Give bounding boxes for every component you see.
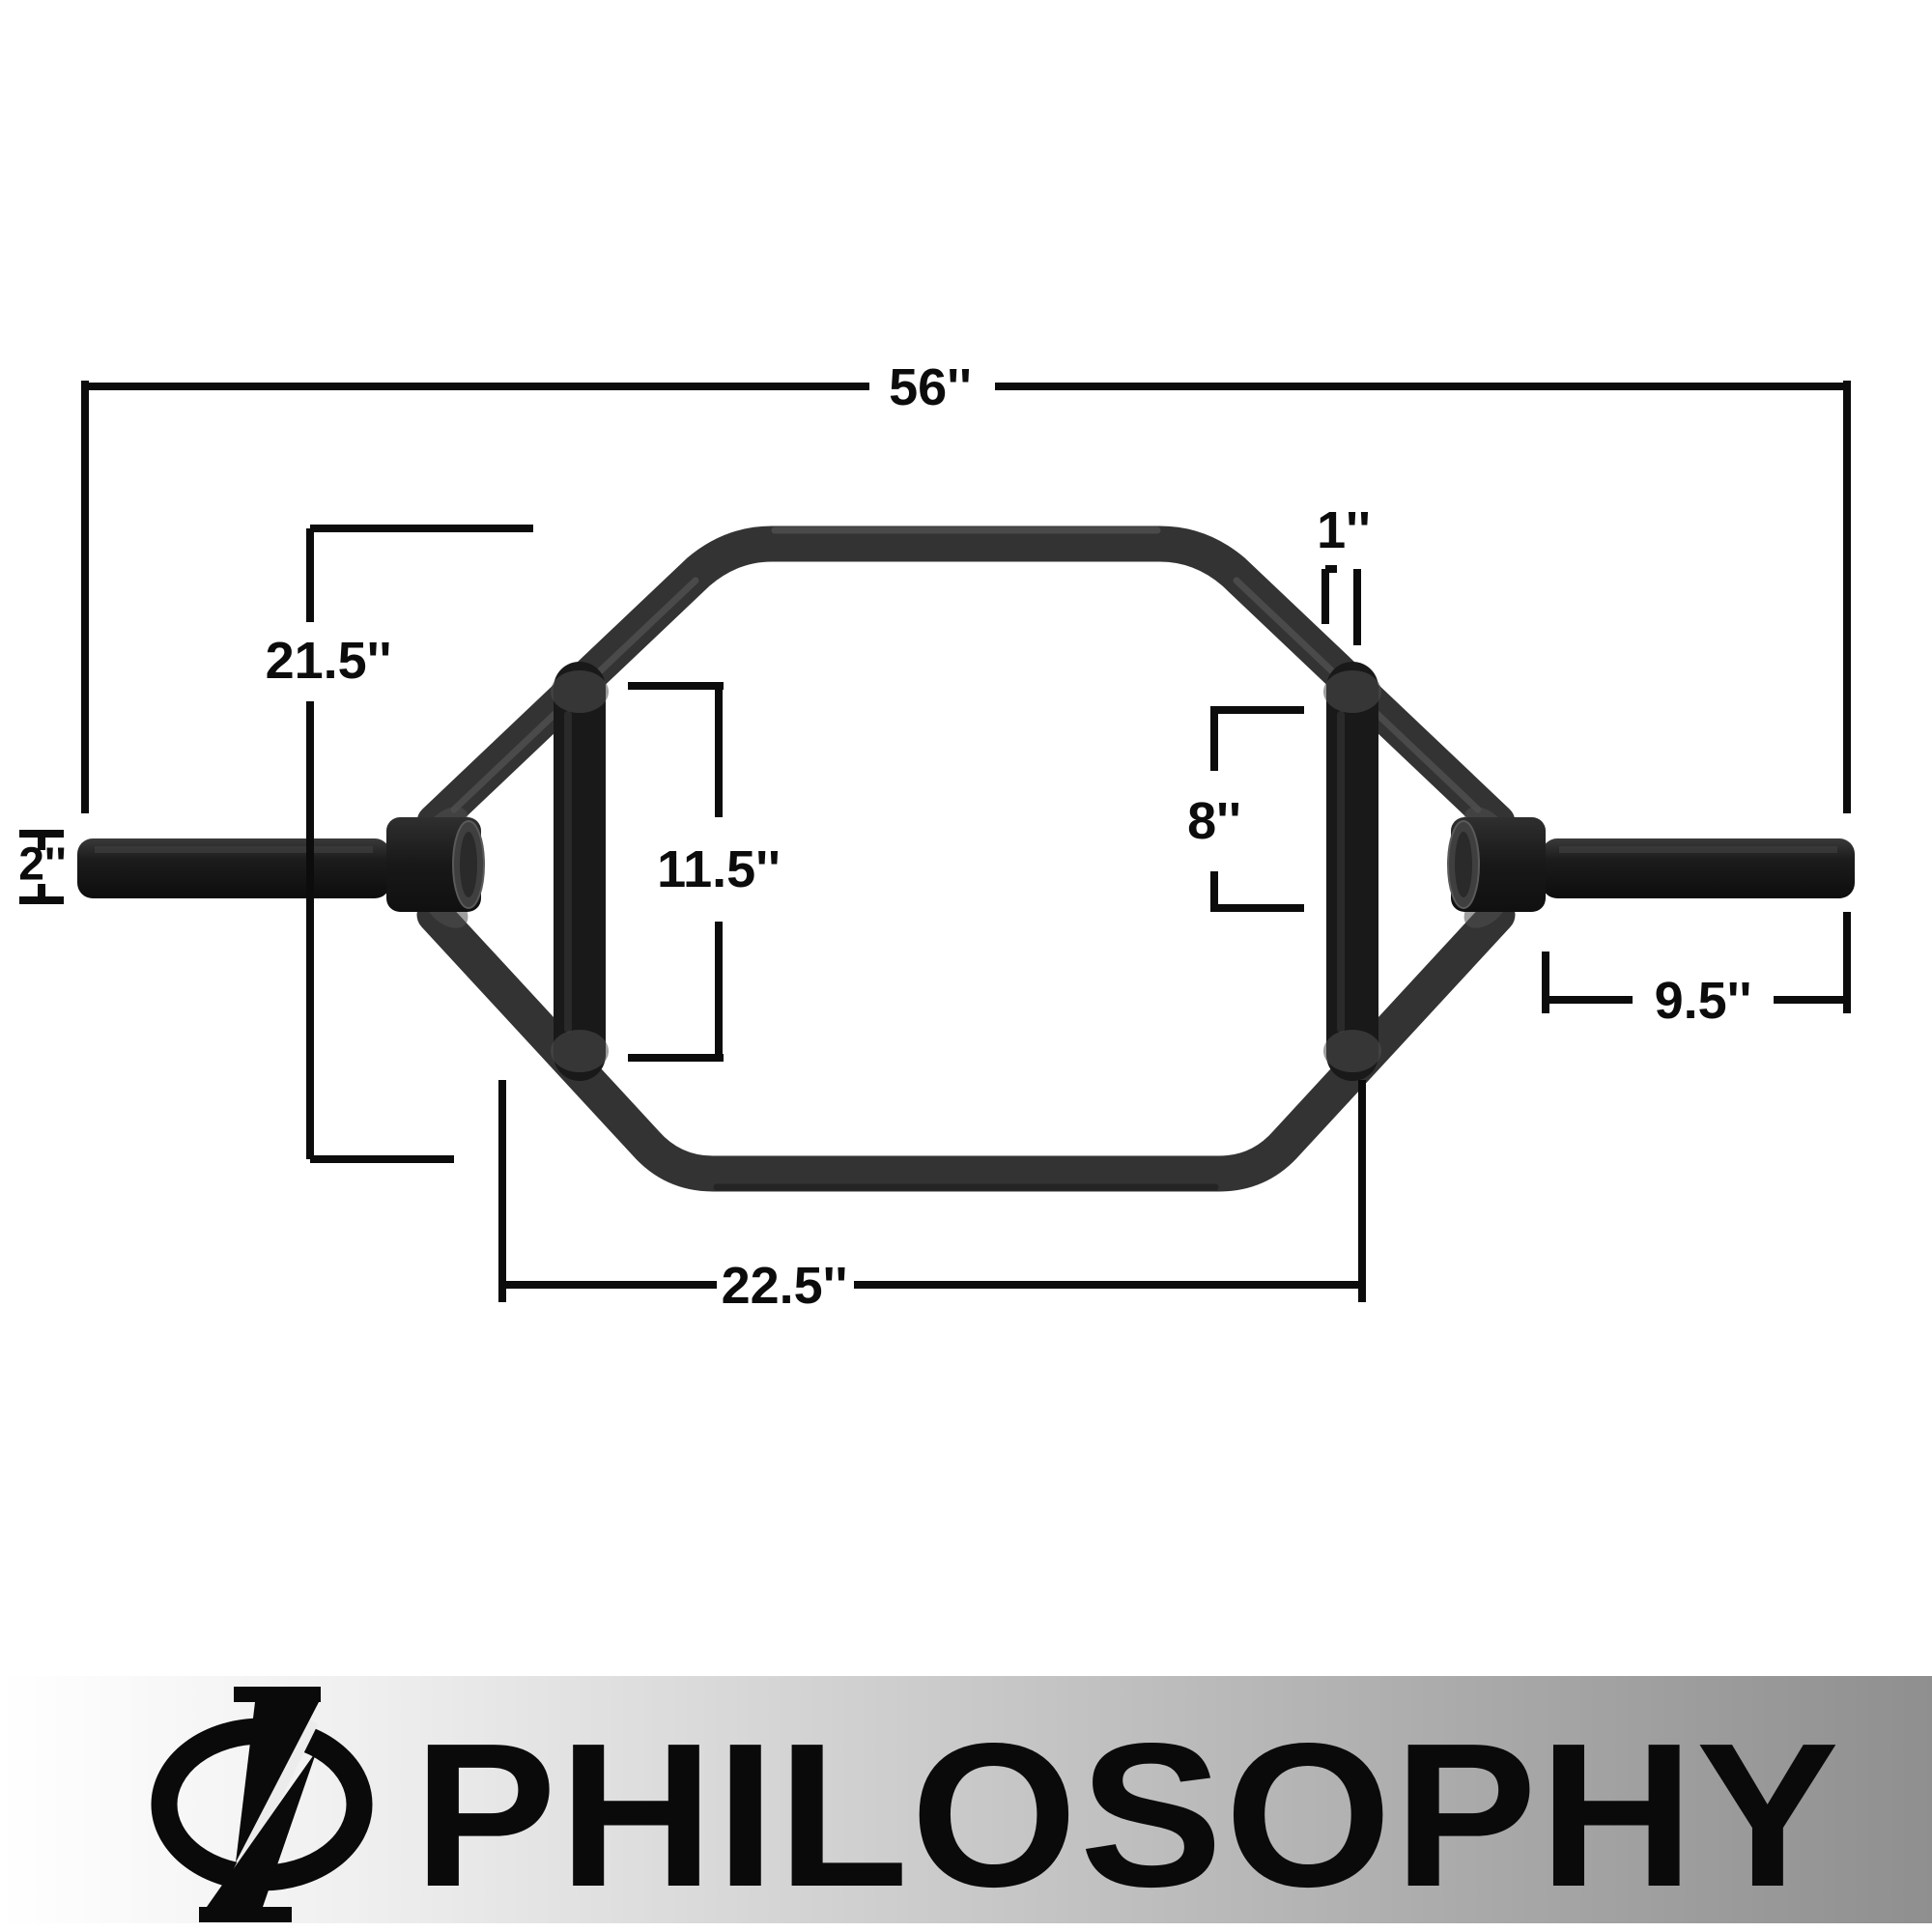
dimension-sleeve-diameter-label: 2''	[18, 839, 67, 891]
hex-bar	[77, 530, 1855, 1187]
weld-right-handle-top	[1323, 670, 1381, 713]
dimension-total-length: 56''	[85, 358, 1847, 813]
dimension-handle-diameter-label: 1''	[1317, 501, 1371, 559]
brand-wordmark: PHILOSOPHY	[413, 1700, 1841, 1929]
right-collar-face-core	[1455, 832, 1472, 897]
brand-banner: PHILOSOPHY	[0, 1676, 1932, 1929]
dimension-base-width-label: 22.5''	[722, 1257, 848, 1315]
dimension-handle-diameter: 1''	[1317, 501, 1371, 645]
dimension-sleeve-diameter: 2''	[18, 834, 67, 900]
hex-bar-dimension-diagram: 56'' 21.5'' 2'' 11.5'' 1'' 8'' 9.5'' 22.…	[0, 0, 1932, 1932]
dimension-handle-length-label: 11.5''	[657, 840, 781, 898]
weld-left-handle-bottom	[551, 1030, 609, 1072]
dimension-sleeve-length: 9.5''	[1546, 912, 1847, 1030]
dimension-sleeve-length-label: 9.5''	[1655, 972, 1752, 1030]
dimension-frame-height-label: 21.5''	[266, 632, 392, 690]
weld-left-handle-top	[551, 670, 609, 713]
dimension-total-label: 56''	[889, 358, 972, 416]
left-collar-face-core	[460, 832, 477, 897]
left-sleeve-highlight	[95, 846, 373, 853]
weld-right-handle-bottom	[1323, 1030, 1381, 1072]
right-sleeve-highlight	[1559, 846, 1837, 853]
hex-bar-dimension-page: 56'' 21.5'' 2'' 11.5'' 1'' 8'' 9.5'' 22.…	[0, 0, 1932, 1932]
dimension-handle-length: 11.5''	[628, 686, 781, 1058]
dimension-grip-section: 8''	[1187, 710, 1304, 908]
dimension-grip-section-label: 8''	[1187, 792, 1241, 850]
